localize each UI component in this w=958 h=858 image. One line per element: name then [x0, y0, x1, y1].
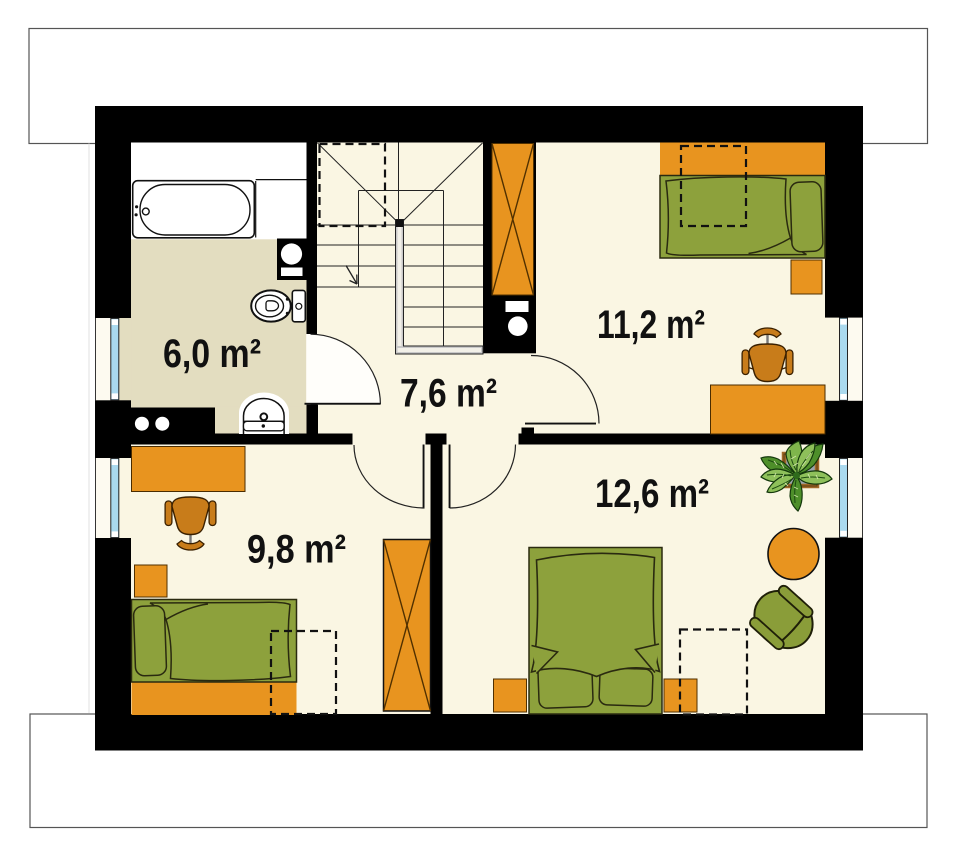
svg-text:11,2 m²: 11,2 m²: [597, 303, 705, 347]
svg-text:12,6 m²: 12,6 m²: [595, 472, 709, 516]
svg-text:9,8 m²: 9,8 m²: [247, 528, 346, 572]
svg-text:7,6 m²: 7,6 m²: [400, 372, 497, 416]
svg-text:6,0 m²: 6,0 m²: [163, 332, 261, 376]
